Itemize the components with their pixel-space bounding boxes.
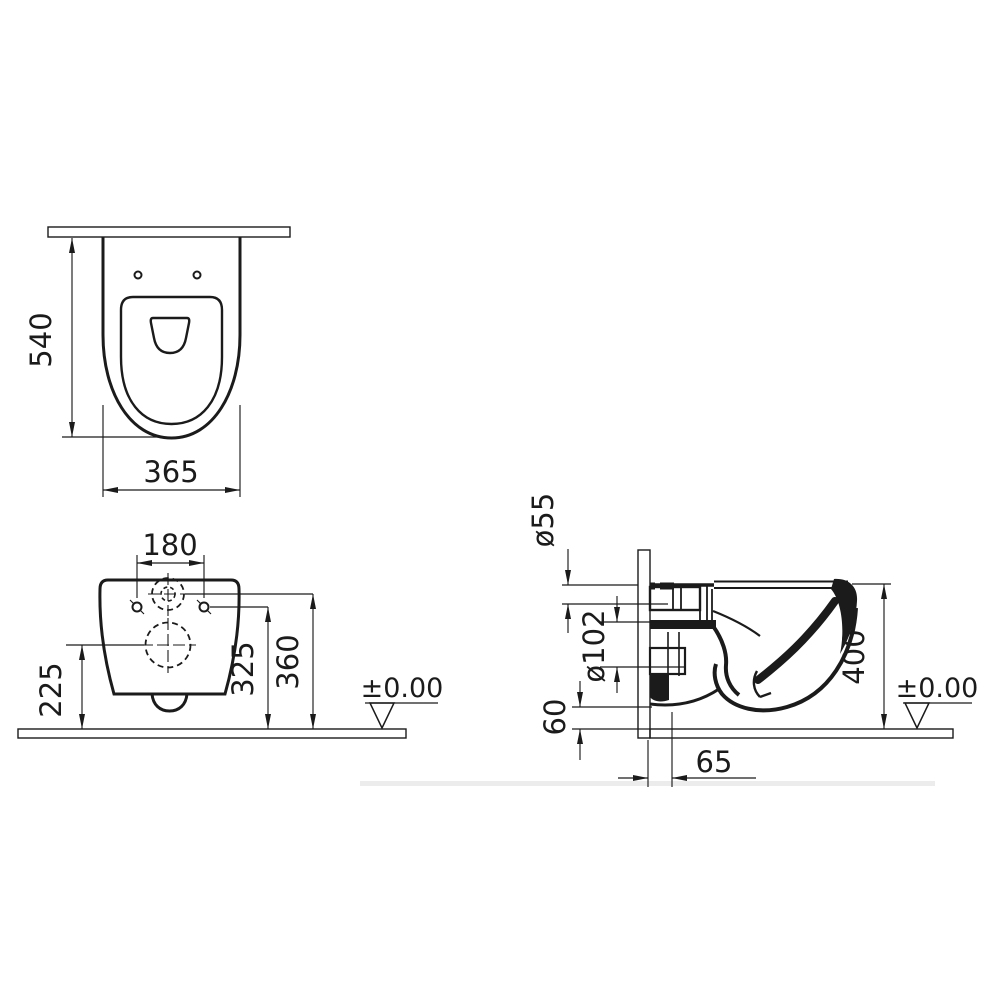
front-view: 180 225 325 360 ±0.00 <box>18 528 443 738</box>
dim-label-60: 60 <box>538 699 572 736</box>
dim-top-width: 365 <box>103 405 240 497</box>
top-view-flush-opening <box>151 318 190 353</box>
technical-drawing-page: 540 365 <box>0 0 1000 1000</box>
front-view-body-outline <box>100 580 239 694</box>
dim-label-225: 225 <box>34 662 68 717</box>
dim-label-325: 325 <box>226 641 260 696</box>
side-view-toilet-profile <box>650 579 857 710</box>
dim-label-360: 360 <box>271 634 305 689</box>
toilet-dimension-drawing: 540 365 <box>0 0 1000 1000</box>
dim-label-400: 400 <box>837 629 871 684</box>
dim-label-65: 65 <box>696 745 733 779</box>
side-view: ø55 ø102 60 400 65 <box>526 493 978 787</box>
front-view-trap-bump <box>152 694 187 711</box>
drain-circle <box>141 618 196 673</box>
level-label-front: ±0.00 <box>361 673 444 704</box>
dim-label-180: 180 <box>142 528 197 562</box>
side-view-floor-section <box>650 729 953 738</box>
dim-label-365: 365 <box>143 455 198 489</box>
level-label-side: ±0.00 <box>896 673 979 704</box>
dim-drain-height: 225 <box>34 645 144 729</box>
seat-hinge-hole-right <box>194 272 201 279</box>
dim-top-depth: 540 <box>24 238 162 437</box>
floor-level-mark-front: ±0.00 <box>361 673 444 728</box>
fixing-hole-right <box>197 600 211 614</box>
dim-outlet-bottom-offset: 60 <box>538 681 652 760</box>
floor-level-mark-side: ±0.00 <box>896 673 979 728</box>
seat-hinge-hole-left <box>135 272 142 279</box>
top-view: 540 365 <box>24 227 290 497</box>
top-view-seat-outline <box>121 297 222 424</box>
dim-label-d55: ø55 <box>526 493 560 548</box>
top-view-wall-section <box>48 227 290 237</box>
top-view-bowl-outline <box>103 237 240 438</box>
dim-outlet-wall-offset: 65 <box>618 712 756 787</box>
dim-label-540: 540 <box>24 312 58 367</box>
fixing-hole-left <box>130 600 144 614</box>
side-view-wall-section <box>638 550 650 738</box>
front-view-floor-section <box>18 729 406 738</box>
dim-label-d102: ø102 <box>577 609 611 682</box>
